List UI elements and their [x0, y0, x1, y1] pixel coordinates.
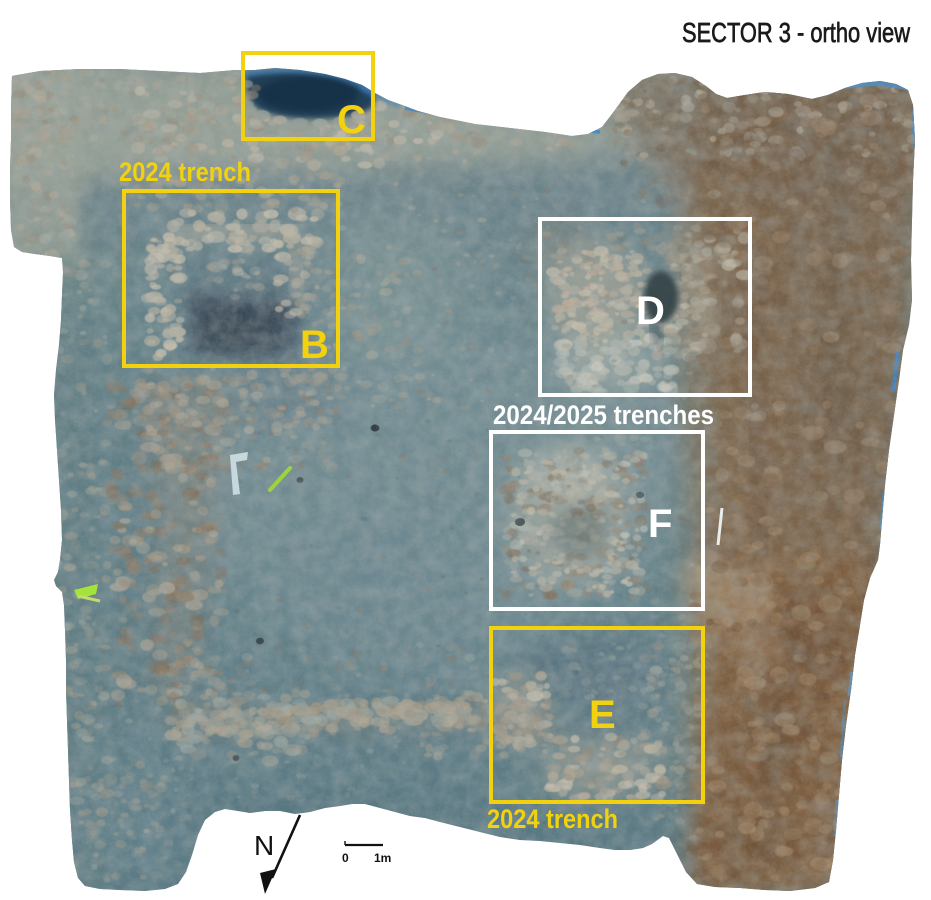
svg-text:0: 0	[342, 851, 349, 865]
svg-text:C: C	[337, 98, 366, 142]
svg-text:2024 trench: 2024 trench	[119, 157, 251, 187]
svg-text:F: F	[648, 502, 672, 546]
svg-text:2024 trench: 2024 trench	[487, 804, 618, 834]
svg-text:D: D	[636, 289, 665, 333]
svg-text:E: E	[589, 693, 616, 737]
svg-text:2024/2025 trenches: 2024/2025 trenches	[493, 400, 714, 430]
svg-text:B: B	[300, 323, 329, 367]
svg-text:N: N	[254, 830, 274, 861]
svg-text:SECTOR 3 - ortho view: SECTOR 3 - ortho view	[682, 17, 911, 48]
svg-text:1m: 1m	[374, 851, 391, 865]
